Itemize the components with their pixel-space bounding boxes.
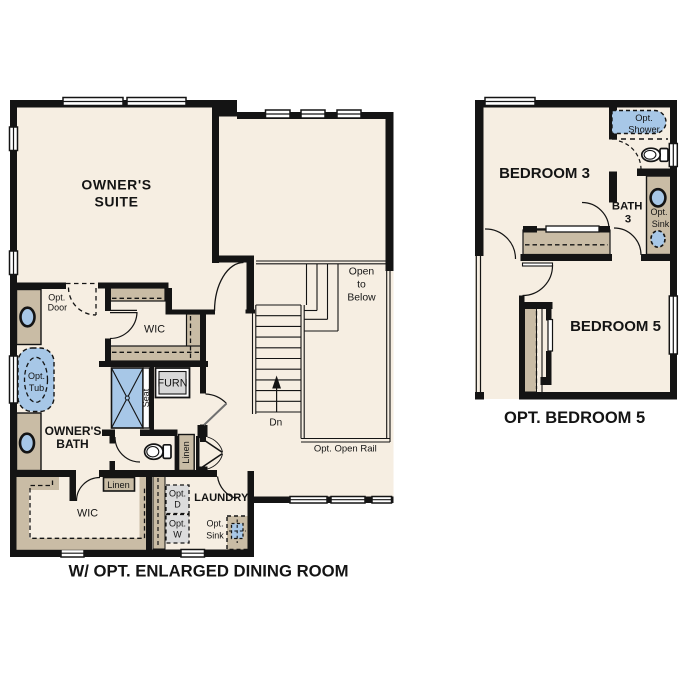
svg-text:BEDROOM 5: BEDROOM 5	[570, 318, 661, 335]
svg-text:BATH: BATH	[56, 437, 88, 451]
svg-text:D: D	[174, 500, 181, 510]
svg-text:Linen: Linen	[181, 441, 191, 463]
svg-text:Linen: Linen	[107, 480, 129, 490]
svg-text:to: to	[357, 280, 366, 291]
svg-text:3: 3	[625, 214, 631, 226]
svg-text:Shower: Shower	[628, 125, 660, 135]
svg-text:LAUNDRY: LAUNDRY	[194, 492, 249, 504]
svg-text:Below: Below	[347, 293, 376, 304]
svg-text:Opt.: Opt.	[169, 519, 186, 529]
svg-text:BATH: BATH	[612, 201, 643, 213]
svg-text:Door: Door	[48, 303, 68, 313]
svg-text:Sink: Sink	[652, 219, 670, 229]
svg-text:OWNER'S: OWNER'S	[45, 424, 102, 438]
svg-text:OPT. BEDROOM 5: OPT. BEDROOM 5	[504, 409, 645, 427]
svg-text:Opt.: Opt.	[206, 519, 223, 529]
svg-text:Opt.: Opt.	[169, 489, 186, 499]
svg-text:BEDROOM 3: BEDROOM 3	[499, 165, 590, 182]
svg-text:Opt. Open Rail: Opt. Open Rail	[314, 444, 377, 455]
svg-text:FURN: FURN	[158, 378, 188, 390]
svg-text:Seat: Seat	[141, 388, 151, 407]
svg-text:Opt.: Opt.	[28, 371, 45, 381]
svg-text:Tub: Tub	[29, 383, 44, 393]
svg-text:OWNER'S: OWNER'S	[81, 177, 151, 193]
svg-text:WIC: WIC	[77, 508, 98, 520]
svg-text:W/ OPT. ENLARGED DINING ROOM: W/ OPT. ENLARGED DINING ROOM	[69, 562, 349, 581]
svg-text:Opt.: Opt.	[650, 207, 667, 217]
svg-text:Open: Open	[349, 267, 375, 278]
svg-text:Opt.: Opt.	[48, 293, 65, 303]
svg-text:Sink: Sink	[206, 531, 224, 541]
svg-text:Dn: Dn	[269, 418, 282, 429]
svg-text:W: W	[173, 530, 182, 540]
svg-text:WIC: WIC	[144, 324, 165, 336]
svg-text:SUITE: SUITE	[95, 194, 139, 210]
svg-text:Opt.: Opt.	[635, 113, 653, 123]
